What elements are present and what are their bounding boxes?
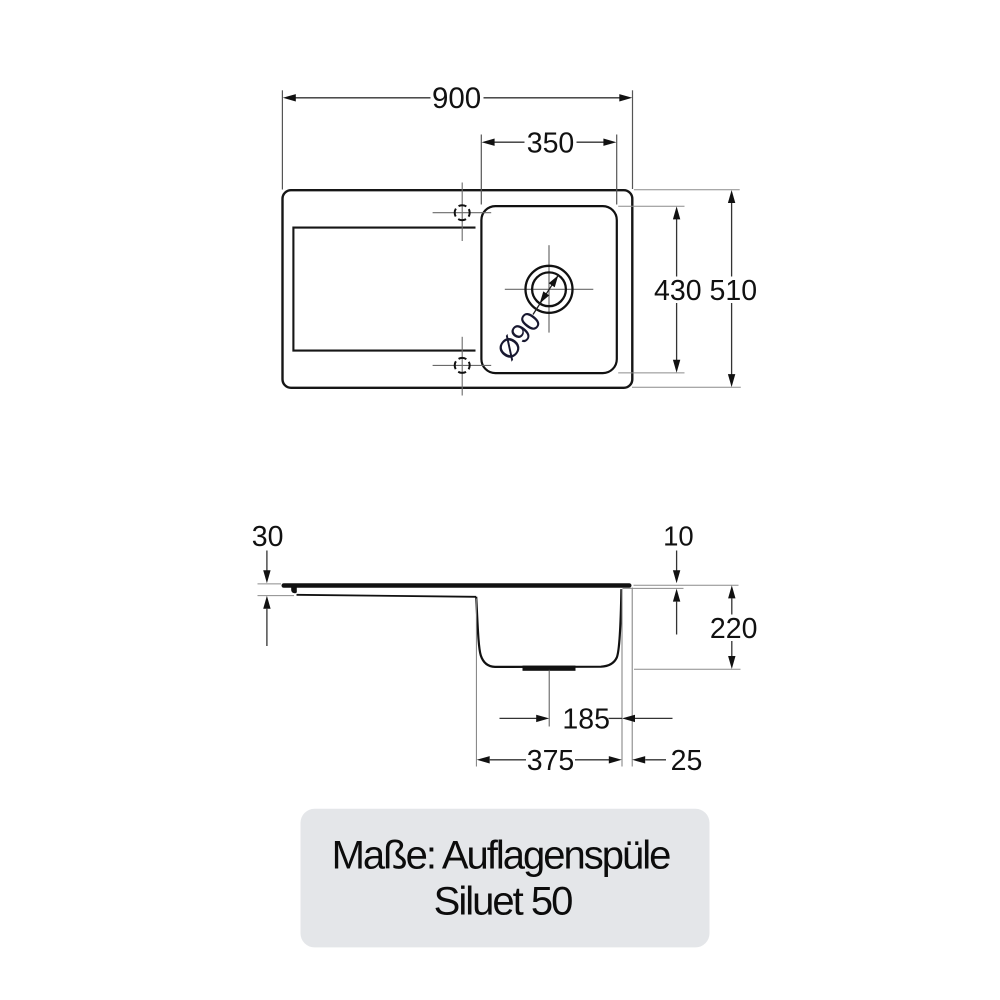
svg-text:430: 430 (654, 275, 702, 307)
svg-text:Maße: Auflagenspüle: Maße: Auflagenspüle (332, 834, 671, 878)
svg-text:Siluet 50: Siluet 50 (434, 879, 572, 923)
svg-text:30: 30 (252, 521, 284, 553)
svg-text:900: 900 (432, 82, 481, 115)
svg-text:510: 510 (710, 275, 758, 307)
svg-text:10: 10 (663, 520, 694, 551)
svg-text:375: 375 (527, 745, 575, 777)
svg-text:25: 25 (671, 745, 703, 777)
svg-text:185: 185 (562, 704, 610, 736)
svg-text:220: 220 (710, 613, 758, 645)
svg-text:350: 350 (527, 127, 575, 159)
